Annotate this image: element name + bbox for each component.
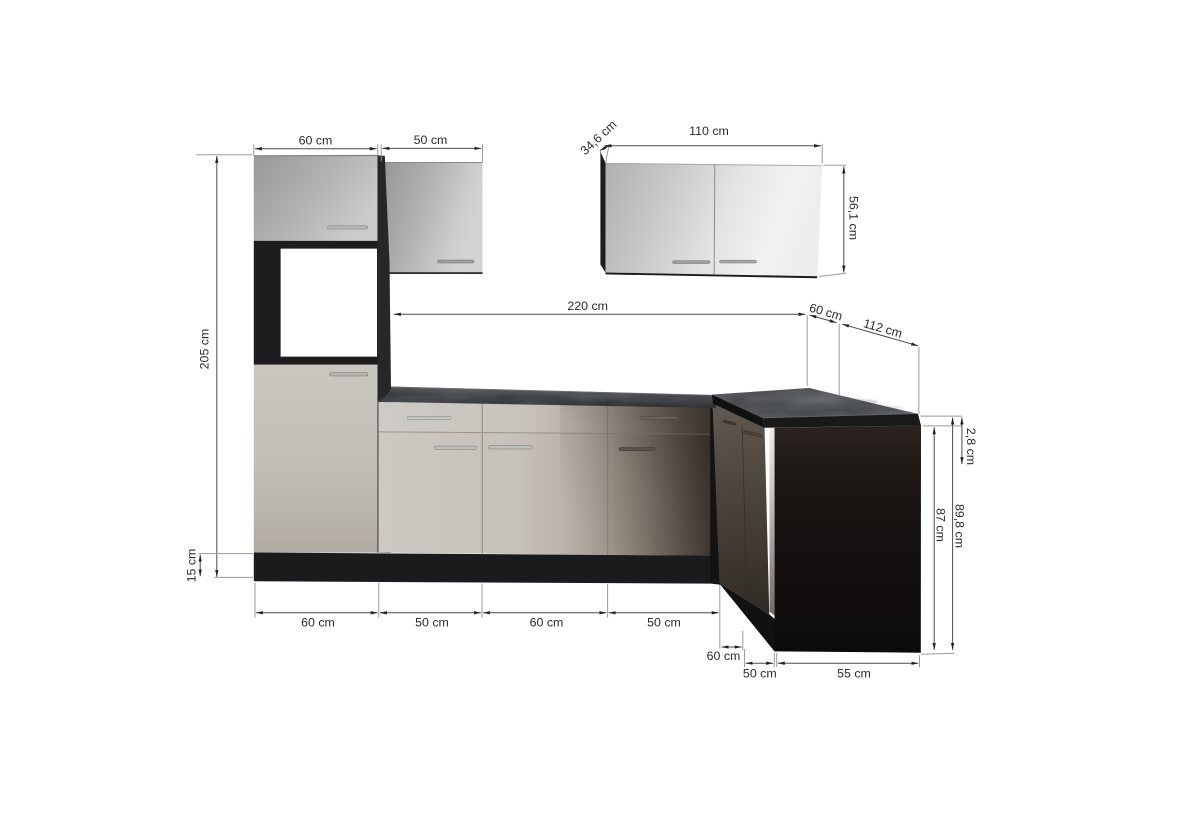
svg-text:60 cm: 60 cm <box>707 649 741 663</box>
svg-text:2,8 cm: 2,8 cm <box>964 428 978 465</box>
svg-text:60 cm: 60 cm <box>299 134 333 148</box>
svg-text:110 cm: 110 cm <box>689 124 729 138</box>
svg-text:220 cm: 220 cm <box>567 299 608 313</box>
svg-text:50 cm: 50 cm <box>743 666 777 680</box>
svg-text:50 cm: 50 cm <box>647 615 681 629</box>
svg-text:89,8 cm: 89,8 cm <box>953 504 967 548</box>
svg-text:55 cm: 55 cm <box>837 666 871 680</box>
svg-text:60 cm: 60 cm <box>301 615 335 629</box>
svg-text:56,1 cm: 56,1 cm <box>847 196 861 240</box>
svg-text:50 cm: 50 cm <box>415 615 449 629</box>
svg-text:60 cm: 60 cm <box>530 615 564 629</box>
svg-text:15 cm: 15 cm <box>184 549 198 583</box>
svg-text:87 cm: 87 cm <box>933 508 947 542</box>
svg-text:50 cm: 50 cm <box>414 133 448 147</box>
svg-text:205 cm: 205 cm <box>197 329 211 370</box>
